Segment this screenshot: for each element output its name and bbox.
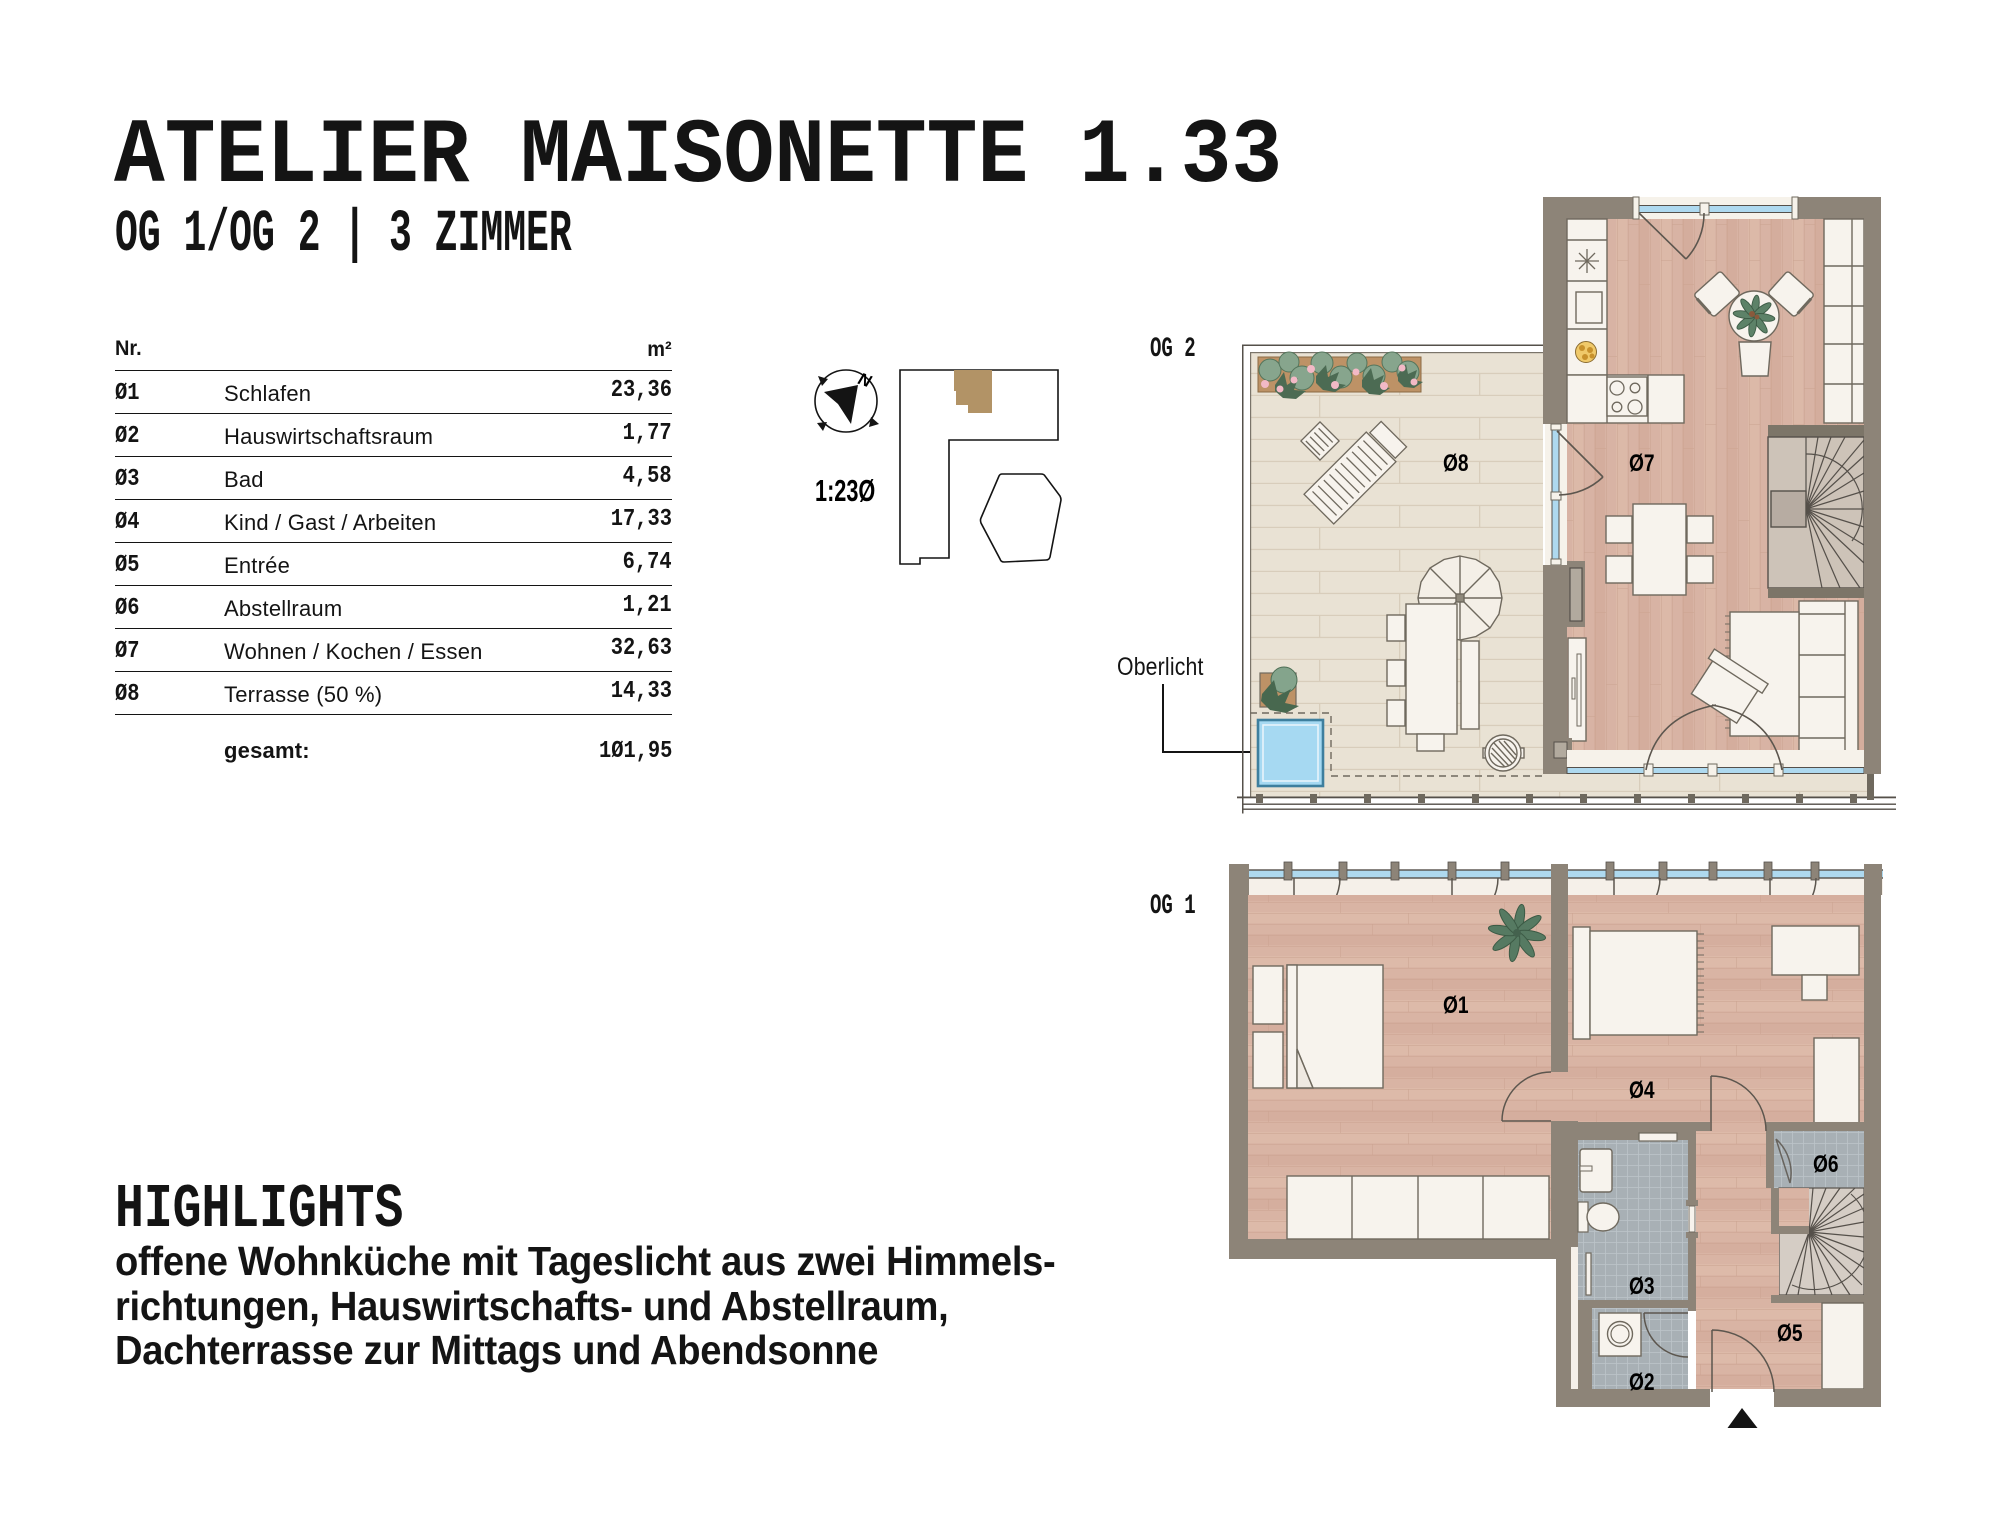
svg-text:Ø7: Ø7 xyxy=(1629,449,1655,477)
svg-text:Ø5: Ø5 xyxy=(1777,1319,1803,1347)
svg-text:1:23Ø: 1:23Ø xyxy=(815,473,875,508)
svg-text:Ø4: Ø4 xyxy=(1629,1076,1655,1104)
svg-text:Ø1: Ø1 xyxy=(1443,991,1469,1019)
svg-text:Ø3: Ø3 xyxy=(1629,1272,1655,1300)
svg-text:Ø6: Ø6 xyxy=(1813,1150,1839,1178)
svg-text:Ø8: Ø8 xyxy=(1443,449,1469,477)
svg-text:Ø2: Ø2 xyxy=(1629,1368,1655,1396)
